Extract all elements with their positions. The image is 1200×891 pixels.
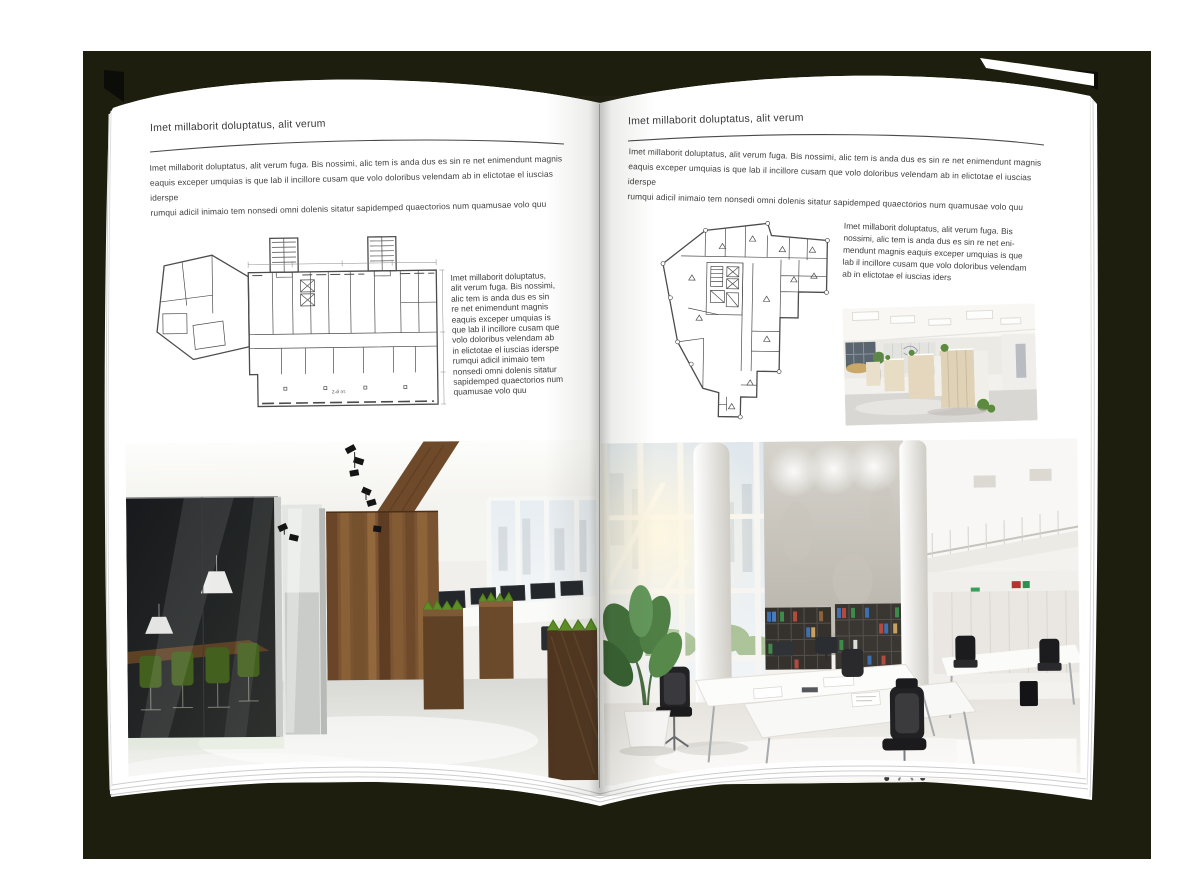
floor-plan-left-drawing: 2-й эт. xyxy=(152,232,447,422)
right-intro-paragraph: Imet millaborit doluptatus, alit verum f… xyxy=(627,144,1049,216)
floor-plan-right-drawing xyxy=(646,217,841,422)
office-photo-workstations xyxy=(842,303,1037,425)
office-photo-atrium xyxy=(601,439,1081,786)
magazine-spread-mockup: Imet millaborit doluptatus, alit verum I… xyxy=(0,0,1200,891)
floor-plan-left-label: 2-й эт. xyxy=(332,388,346,395)
page-curl-sliver-right xyxy=(980,58,1094,86)
left-side-paragraph: Imet millaborit doluptatus, alit verum f… xyxy=(450,269,587,397)
right-side-paragraph: Imet millaborit doluptatus, alit verum f… xyxy=(842,220,1048,287)
office-photo-loft xyxy=(126,440,599,784)
cover-corner-left xyxy=(104,70,124,102)
left-intro-paragraph: Imet millaborit doluptatus, alit verum f… xyxy=(149,151,574,221)
